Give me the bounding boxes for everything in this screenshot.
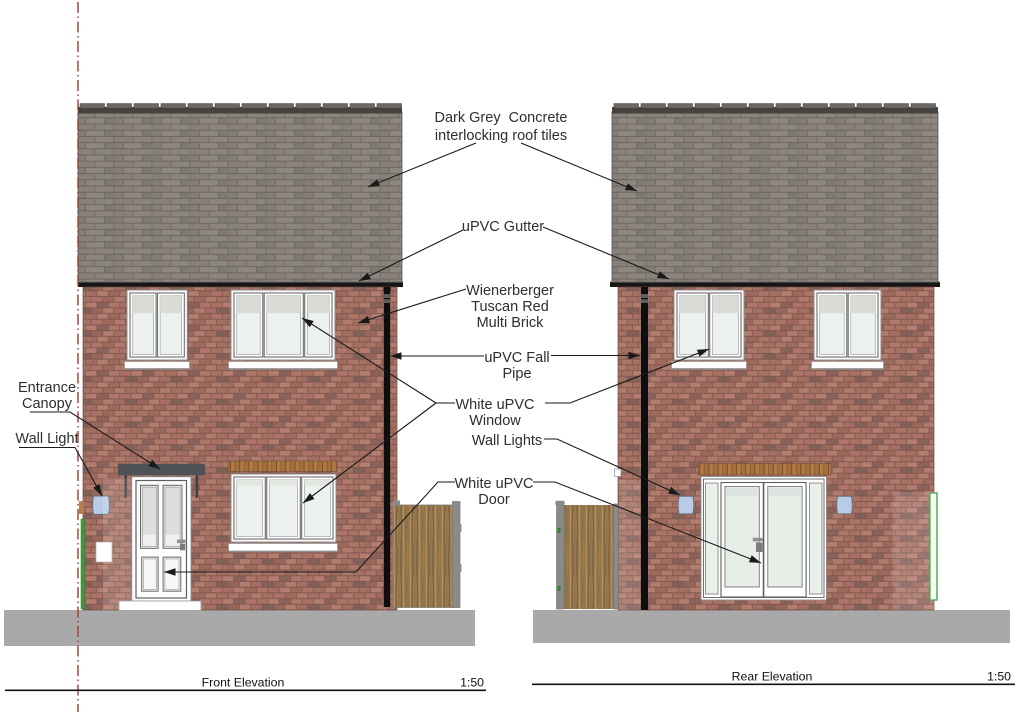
svg-text:Front Elevation: Front Elevation (202, 676, 285, 690)
svg-text:Wall Light: Wall Light (15, 431, 78, 447)
svg-text:1:50: 1:50 (987, 670, 1011, 684)
svg-text:Entrance: Entrance (18, 380, 76, 396)
svg-text:White uPVC: White uPVC (456, 397, 535, 413)
svg-text:Wienerberger: Wienerberger (466, 283, 554, 299)
svg-text:1:50: 1:50 (460, 676, 484, 690)
svg-text:interlocking roof tiles: interlocking roof tiles (435, 128, 567, 144)
svg-text:Rear Elevation: Rear Elevation (732, 670, 813, 684)
svg-text:Tuscan Red: Tuscan Red (471, 299, 549, 315)
svg-text:Door: Door (478, 492, 510, 508)
svg-text:Window: Window (469, 413, 521, 429)
svg-text:Multi Brick: Multi Brick (477, 315, 545, 331)
svg-text:uPVC Gutter: uPVC Gutter (462, 219, 544, 235)
svg-text:uPVC Fall: uPVC Fall (484, 350, 549, 366)
svg-text:Canopy: Canopy (22, 396, 73, 412)
svg-text:Wall Lights: Wall Lights (472, 433, 542, 449)
svg-text:Pipe: Pipe (502, 366, 531, 382)
svg-text:White uPVC: White uPVC (455, 476, 534, 492)
svg-text:Dark Grey Concrete: Dark Grey Concrete (435, 110, 568, 126)
